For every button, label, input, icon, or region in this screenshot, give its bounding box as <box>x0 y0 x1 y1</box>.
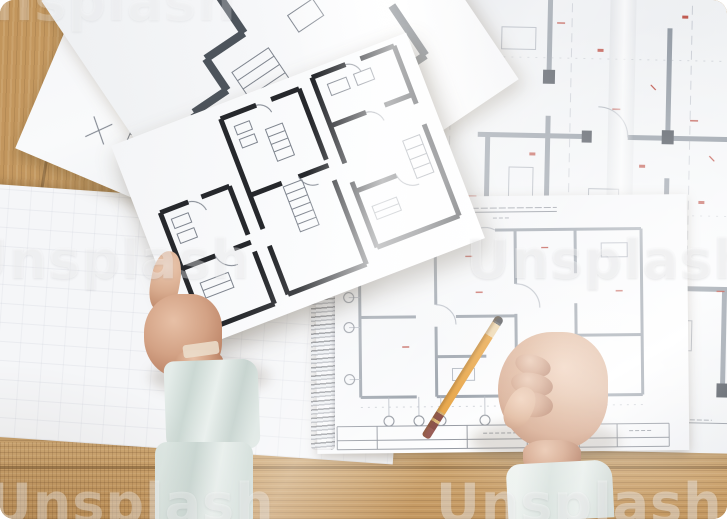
photo-card: Unsplash Unsplash Unsplash Unsplash Unsp… <box>0 0 727 519</box>
unsplash-watermark: Unsplash <box>436 472 723 519</box>
unsplash-watermark: Unsplash <box>466 228 727 291</box>
unsplash-watermark: Unsplash <box>0 472 275 519</box>
desk-photo: Unsplash Unsplash Unsplash Unsplash Unsp… <box>0 0 727 519</box>
left-sleeve-cuff <box>163 358 260 451</box>
unsplash-watermark: Unsplash <box>0 0 237 33</box>
unsplash-watermark: Unsplash <box>0 228 251 291</box>
